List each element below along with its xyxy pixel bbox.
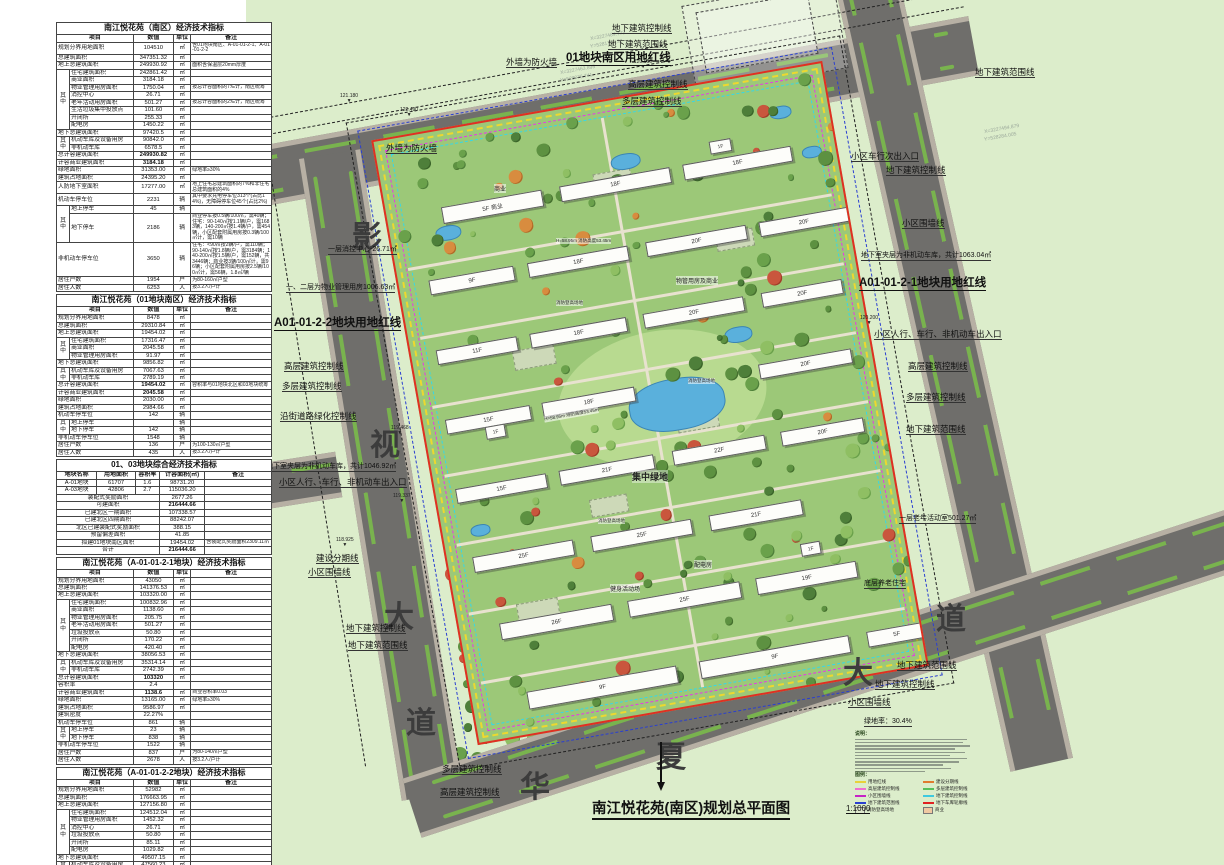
building-label: 9F [771, 654, 779, 661]
callout-label: 地下建筑范围线 [906, 425, 966, 435]
table-cell: 2231 [133, 194, 173, 206]
callout-label: 地下建筑控制线 [886, 166, 946, 176]
table-cell: 建筑密度 [57, 712, 134, 719]
table-cell [191, 652, 272, 659]
table-cell: ㎡ [174, 174, 191, 181]
tree-icon [764, 486, 775, 497]
table-cell: ㎡ [174, 592, 191, 599]
tree-icon [817, 150, 834, 167]
building-label: 20F [817, 428, 828, 436]
table-cell: 项目 [57, 779, 134, 787]
plan-feature-label: 集中绿地 [632, 470, 668, 483]
table-cell: ㎡ [174, 404, 191, 411]
tree-icon [427, 269, 435, 277]
table-cell [205, 524, 272, 531]
table-cell: 老年活动用房面积 [70, 99, 134, 106]
table-cell: 103320.00 [133, 592, 173, 599]
table-cell: 1522 [133, 742, 173, 749]
table-cell: 已建北区四期面积 [57, 517, 160, 524]
table-cell [191, 144, 272, 151]
table-cell [191, 389, 272, 396]
tree-icon [643, 579, 653, 589]
table-cell: 29310.84 [133, 322, 173, 329]
table-cell: 辆 [174, 742, 191, 749]
table-cell: ㎡ [174, 644, 191, 651]
table-cell: ㎡ [174, 389, 191, 396]
building-label: 9F [599, 684, 607, 691]
callout-label: 小区车行次出入口 [851, 152, 919, 162]
table-cell: 项目 [57, 34, 134, 42]
table-cell [191, 674, 272, 681]
table-cell: ㎡ [174, 659, 191, 666]
elevation-mark: 119.337▼ [393, 494, 411, 504]
table-cell [191, 129, 272, 136]
legend-swatch [855, 795, 866, 797]
building-label: 18F [573, 258, 584, 266]
table-cell: ㎡ [174, 667, 191, 674]
tree-icon [634, 571, 644, 581]
table-cell: 预留偏差面积 [57, 532, 160, 539]
table-cell: 136 [133, 442, 173, 449]
table-cell: ㎡ [174, 854, 191, 861]
building-label: 18F [573, 329, 584, 337]
table-cell: 3650 [133, 242, 173, 277]
callout-label: 多层建筑控制线 [906, 393, 966, 403]
building-footprint: 20F [645, 225, 748, 257]
table-cell: 可建面积 [57, 502, 160, 509]
table-cell: 建筑占地面积 [57, 174, 134, 181]
table-cell [191, 114, 272, 121]
table-cell: ㎡ [174, 585, 191, 592]
table-cell: 43050 [133, 577, 173, 584]
table-cell [191, 862, 272, 865]
table-cell: 生活垃圾集中投放点 [70, 107, 134, 114]
callout-label: 地下建筑控制线 [875, 680, 935, 690]
table-cell: 计容商业建筑面积 [57, 689, 134, 696]
table-cell: 其中 [57, 206, 70, 242]
table-cell [191, 599, 272, 606]
table-cell: 838 [133, 734, 173, 741]
table-cell: 01、03地块综合经济技术指标 [57, 460, 272, 472]
table-cell: 141376.53 [133, 585, 173, 592]
tree-icon [882, 527, 897, 542]
tree-icon [536, 142, 551, 157]
tree-icon [631, 212, 640, 221]
building-footprint: 25F [472, 540, 575, 573]
callout-label: 外墙为防火墙 [386, 144, 437, 154]
table-cell: 总建筑面积 [57, 585, 134, 592]
tree-icon [571, 555, 586, 570]
table-cell: 开闭所 [70, 637, 134, 644]
table-cell: 计容商业建筑面积 [57, 389, 134, 396]
building-label: 15F [496, 485, 507, 493]
tree-icon [744, 283, 758, 297]
table-cell [191, 330, 272, 337]
legend-item: 小区围墙线 [855, 793, 923, 799]
note-line [855, 768, 951, 769]
callout-label: 地下室夹层为非机动车库，共计1046.92㎡ [266, 463, 396, 472]
table-cell: 数值 [133, 779, 173, 787]
table-cell [205, 487, 272, 494]
table-cell [191, 704, 272, 711]
road-name-char: 道 [406, 698, 436, 742]
table-cell: ㎡ [174, 122, 191, 129]
table-cell: ㎡ [174, 152, 191, 159]
elevation-triangle-icon: ▼ [400, 113, 418, 118]
table-cell: 建筑占地面积 [57, 704, 134, 711]
note-line [855, 752, 965, 753]
note-line [855, 742, 963, 743]
table-cell [191, 629, 272, 636]
table-cell: 为100-130㎡户型 [191, 442, 272, 449]
table-cell: 非机动车库 [70, 144, 134, 151]
table-cell [191, 174, 272, 181]
table-cell: 420.40 [133, 644, 173, 651]
building-label: 26F [551, 618, 562, 626]
table-cell [191, 802, 272, 809]
table-cell: 47560.23 [133, 862, 173, 865]
table-cell [191, 122, 272, 129]
legend-item: 商业 [923, 807, 991, 814]
tree-icon [802, 586, 818, 602]
building-label: 18F [583, 398, 594, 406]
table-cell: ㎡ [174, 367, 191, 374]
callout-label: 地下建筑范围线 [897, 661, 957, 671]
table-cell: 消控中心 [70, 824, 134, 831]
callout-label: 小区人行、车行、非机动车出入口 [279, 478, 407, 488]
table-cell [191, 659, 272, 666]
table-cell: 为80-160㎡户型 [191, 277, 272, 284]
building-label: 25F [679, 596, 690, 604]
table-cell: 合计 [57, 547, 160, 554]
table-cell: 其中要求充电停车位313个(占比14%)，无障碍停车位45个(占比2%) [191, 194, 272, 206]
table-cell [174, 682, 191, 689]
indicator-table-5: 南江悦花苑（A-01-01-2-2地块）经济技术指标项目数值单位备注规划分界用地… [56, 767, 272, 865]
table-cell: 配电房 [70, 847, 134, 854]
building-label: 15F [483, 416, 494, 424]
table-cell [191, 54, 272, 61]
table-cell: 26.71 [133, 92, 173, 99]
table-cell: ㎡ [174, 330, 191, 337]
callout-label: 地下建筑范围线 [608, 40, 668, 50]
tree-icon [609, 264, 621, 276]
table-cell: ㎡ [174, 92, 191, 99]
table-cell: 备注 [205, 472, 272, 480]
legend-item-label: 建设分期线 [936, 779, 959, 785]
table-cell: 6253 [133, 284, 173, 291]
table-cell: 容积率 [135, 472, 159, 480]
table-cell: ㎡ [174, 697, 191, 704]
table-cell [191, 137, 272, 144]
table-cell [191, 592, 272, 599]
table-cell: 1450.22 [133, 122, 173, 129]
table-cell [191, 585, 272, 592]
building-footprint: 18F [682, 146, 793, 181]
tree-icon [736, 279, 744, 287]
table-cell: 机动车库及设备用房 [70, 659, 134, 666]
table-cell [191, 315, 272, 322]
table-cell: ㎡ [174, 614, 191, 621]
note-line [855, 745, 970, 746]
table-cell: ㎡ [174, 824, 191, 831]
table-cell [191, 644, 272, 651]
table-cell: A-01地块 [57, 480, 97, 487]
table-cell: 249930.82 [133, 152, 173, 159]
table-cell: 开闭所 [70, 839, 134, 846]
tree-icon [510, 131, 522, 143]
tree-icon [542, 193, 554, 205]
callout-label: 多层建筑控制线 [282, 382, 342, 392]
table-cell: 规划分界用地面积 [57, 787, 134, 794]
table-cell: 住宅建筑面积 [70, 809, 134, 816]
table-cell: 124512.04 [133, 809, 173, 816]
table-cell: ㎡ [174, 375, 191, 382]
tree-icon [741, 105, 754, 118]
tree-icon [810, 240, 820, 250]
table-cell: 辆 [174, 412, 191, 419]
table-cell: 绿地率≥30% [191, 697, 272, 704]
table-cell: 绿地面积 [57, 397, 134, 404]
table-cell: 1750.04 [133, 84, 173, 91]
table-cell: ㎡ [174, 54, 191, 61]
table-cell [133, 419, 173, 426]
building-label: 1F [717, 143, 724, 150]
water-feature [470, 523, 492, 538]
table-cell [191, 427, 272, 434]
tree-icon [870, 434, 879, 443]
table-cell [191, 824, 272, 831]
table-cell: ㎡ [174, 77, 191, 84]
table-cell: 数值 [133, 34, 173, 42]
tree-icon [755, 252, 771, 268]
water-feature [610, 151, 642, 172]
plan-feature-label: 配电房 [694, 560, 712, 569]
table-cell: 其中 [57, 727, 70, 742]
table-cell: 38056.53 [133, 652, 173, 659]
table-cell: 商业面积 [70, 607, 134, 614]
table-cell: ㎡ [174, 107, 191, 114]
legend-block: 图例： 用地红线建设分期线高层建筑控制线多层建筑控制线小区围墙线地下建筑控制线地… [855, 771, 991, 814]
table-cell: ㎡ [174, 352, 191, 359]
table-cell: 居住户数 [57, 442, 134, 449]
table-cell [191, 577, 272, 584]
table-cell: 单位 [174, 34, 191, 42]
indicator-table-1: 南江悦花苑（南区）经济技术指标项目数值单位备注规划分界用地面积104510㎡含0… [56, 22, 272, 292]
table-cell: 备注 [191, 307, 272, 315]
table-cell: ㎡ [174, 42, 191, 54]
table-cell: 50.80 [133, 832, 173, 839]
table-cell: 商业面积 [70, 345, 134, 352]
table-cell [191, 682, 272, 689]
table-cell: 100832.96 [133, 599, 173, 606]
table-cell: 地下停车 [70, 213, 134, 242]
table-cell: 开闭所 [70, 114, 134, 121]
elevation-triangle-icon: ▼ [393, 499, 411, 504]
building-label: 21F [750, 511, 761, 519]
table-cell: 机动车库及设备用房 [70, 137, 134, 144]
table-cell: 地下总建筑面积 [57, 854, 134, 861]
tree-icon [676, 105, 691, 120]
tree-icon [507, 169, 523, 185]
table-cell: ㎡ [174, 84, 191, 91]
callout-label: 底层养老住宅 [864, 580, 906, 589]
table-cell: 其中 [57, 862, 70, 865]
legend-item-label: 地下建筑范围线 [868, 800, 900, 806]
building-label: 19F [801, 574, 812, 582]
table-cell: 非机动车库 [70, 667, 134, 674]
table-cell [191, 607, 272, 614]
table-cell: 住宅建筑面积 [70, 337, 134, 344]
table-cell: 9586.97 [133, 704, 173, 711]
table-cell: 户 [174, 277, 191, 284]
table-cell: ㎡ [174, 674, 191, 681]
table-cell: 435 [133, 449, 173, 456]
legend-item-label: 消防登高场地 [867, 807, 894, 813]
callout-label: 一层消控中心-26.71㎡ [328, 246, 397, 255]
table-cell: ㎡ [174, 360, 191, 367]
tree-icon [794, 331, 811, 348]
indicator-table-2: 南江悦花苑（01地块南区）经济技术指标项目数值单位备注规划分界用地面积8478㎡… [56, 294, 272, 457]
table-cell: ㎡ [174, 607, 191, 614]
legend-title: 图例： [855, 771, 991, 778]
table-cell [191, 206, 272, 213]
tree-icon [469, 231, 476, 238]
building-footprint: 20F [758, 207, 849, 237]
drawing-scale: 1:1000 [846, 804, 870, 814]
table-cell [191, 794, 272, 801]
elevation-triangle-icon: ▼ [340, 99, 358, 104]
tree-icon [567, 581, 577, 591]
tree-icon [825, 305, 833, 313]
table-cell: 辆 [174, 427, 191, 434]
table-cell: 地上停车 [70, 727, 134, 734]
table-cell: 地上总建筑面积 [57, 802, 134, 809]
table-cell: ㎡ [174, 794, 191, 801]
table-cell: 非机动车停车位 [57, 242, 134, 277]
table-cell: ㎡ [174, 345, 191, 352]
table-cell: 9856.82 [133, 360, 173, 367]
table-cell: 老年活动用房面积 [70, 622, 134, 629]
table-cell: 已建北区一期面积 [57, 509, 160, 516]
table-cell: 住宅建筑面积 [70, 599, 134, 606]
table-cell: 7067.63 [133, 367, 173, 374]
table-cell: 非机动车停车位 [57, 434, 134, 441]
plan-feature-label: 健身活动场 [610, 584, 640, 593]
callout-label: 绿地率：30.4% [864, 718, 912, 727]
callout-label: A01-01-2-2地块用地红线 [274, 317, 401, 331]
tree-icon [622, 115, 634, 127]
callout-label: 小区围墙线 [848, 698, 891, 708]
table-cell [191, 322, 272, 329]
elevation-mark: 120.200▼ [860, 316, 878, 326]
plan-feature-label: H=58.95m 消防高度53.45m [556, 238, 611, 244]
table-cell [191, 397, 272, 404]
callout-label: 一、二层为物业管理用房1006.63㎡ [286, 284, 395, 293]
tree-icon [759, 340, 775, 356]
legend-item-label: 小区围墙线 [868, 793, 891, 799]
table-cell [191, 734, 272, 741]
table-cell: 23 [133, 727, 173, 734]
tree-icon [766, 270, 783, 287]
table-cell: 规划分界用地面积 [57, 315, 134, 322]
callout-label: 01地块南区用地红线 [566, 52, 671, 66]
table-cell: 49507.15 [133, 854, 173, 861]
table-cell: 52982 [133, 787, 173, 794]
table-cell: 2984.66 [133, 404, 173, 411]
building-footprint: 5F [866, 622, 928, 648]
table-cell: 104510 [133, 42, 173, 54]
building-label: 20F [800, 360, 811, 368]
note-line [855, 758, 967, 759]
table-cell: 南江悦花苑（A-01-01-2-2地块）经济技术指标 [57, 767, 272, 779]
table-cell: 项目 [57, 569, 134, 577]
table-cell [205, 480, 272, 487]
table-cell: 人防地下室面积 [57, 182, 134, 194]
table-cell: 其中 [57, 599, 70, 651]
indicator-table-3: 01、03地块综合经济技术指标地块名称用地面积容积率计容面积(㎡)备注A-01地… [56, 459, 272, 555]
table-cell: 1548 [133, 434, 173, 441]
table-cell: ㎡ [174, 322, 191, 329]
table-cell: 2186 [133, 213, 173, 242]
table-cell: 地上停车 [70, 206, 134, 213]
notes-block: 说明： [855, 730, 977, 774]
building-label: 20F [797, 290, 808, 298]
table-cell: 消控中心 [70, 92, 134, 99]
table-cell: 1954 [133, 277, 173, 284]
tree-icon [742, 526, 758, 542]
building-label: 1F [492, 428, 499, 435]
table-cell: 其中 [57, 419, 70, 434]
road-name-char: 大 [843, 648, 873, 692]
tree-icon [791, 530, 804, 543]
tree-icon [458, 149, 467, 158]
table-cell [191, 69, 272, 76]
building-label: 1F [807, 545, 814, 552]
table-cell: ㎡ [174, 689, 191, 696]
table-cell: ㎡ [174, 839, 191, 846]
table-cell: ㎡ [174, 167, 191, 174]
table-cell [191, 817, 272, 824]
road-name-char: 华 [520, 762, 550, 806]
tree-icon [724, 616, 734, 626]
note-line [855, 739, 967, 740]
table-cell: 计容面积(㎡) [159, 472, 204, 480]
table-cell: 非机动车库 [70, 375, 134, 382]
table-cell: 13165.00 [133, 697, 173, 704]
building-label: 21F [601, 466, 612, 474]
callout-label: 地下室夹层为非机动车库，共计1063.04㎡ [861, 252, 991, 261]
table-cell: 绿地面积 [57, 697, 134, 704]
north-arrow-stem [660, 742, 662, 782]
legend-swatch [855, 788, 866, 790]
table-cell: 101.60 [133, 107, 173, 114]
plan-feature-label: 消防登高场地 [598, 518, 625, 524]
callout-label: 小区围墙线 [308, 568, 351, 578]
table-cell: 南江悦花苑（01地块南区）经济技术指标 [57, 295, 272, 307]
table-cell [191, 847, 272, 854]
table-cell: 拟建01地块南区面积 [57, 539, 160, 546]
callout-label: 沿街道路绿化控制线 [280, 412, 357, 422]
table-cell: 容积率与01地块北区和03地块统筹 [191, 382, 272, 389]
drawing-title: 南江悦花苑(南区)规划总平面图 [592, 797, 790, 820]
tree-icon [764, 668, 771, 675]
table-cell [191, 367, 272, 374]
table-cell: 1452.32 [133, 817, 173, 824]
table-cell: 19454.02 [159, 539, 204, 546]
plan-feature-label: 消防登高场地 [556, 300, 583, 306]
table-cell [191, 622, 272, 629]
table-cell [205, 532, 272, 539]
